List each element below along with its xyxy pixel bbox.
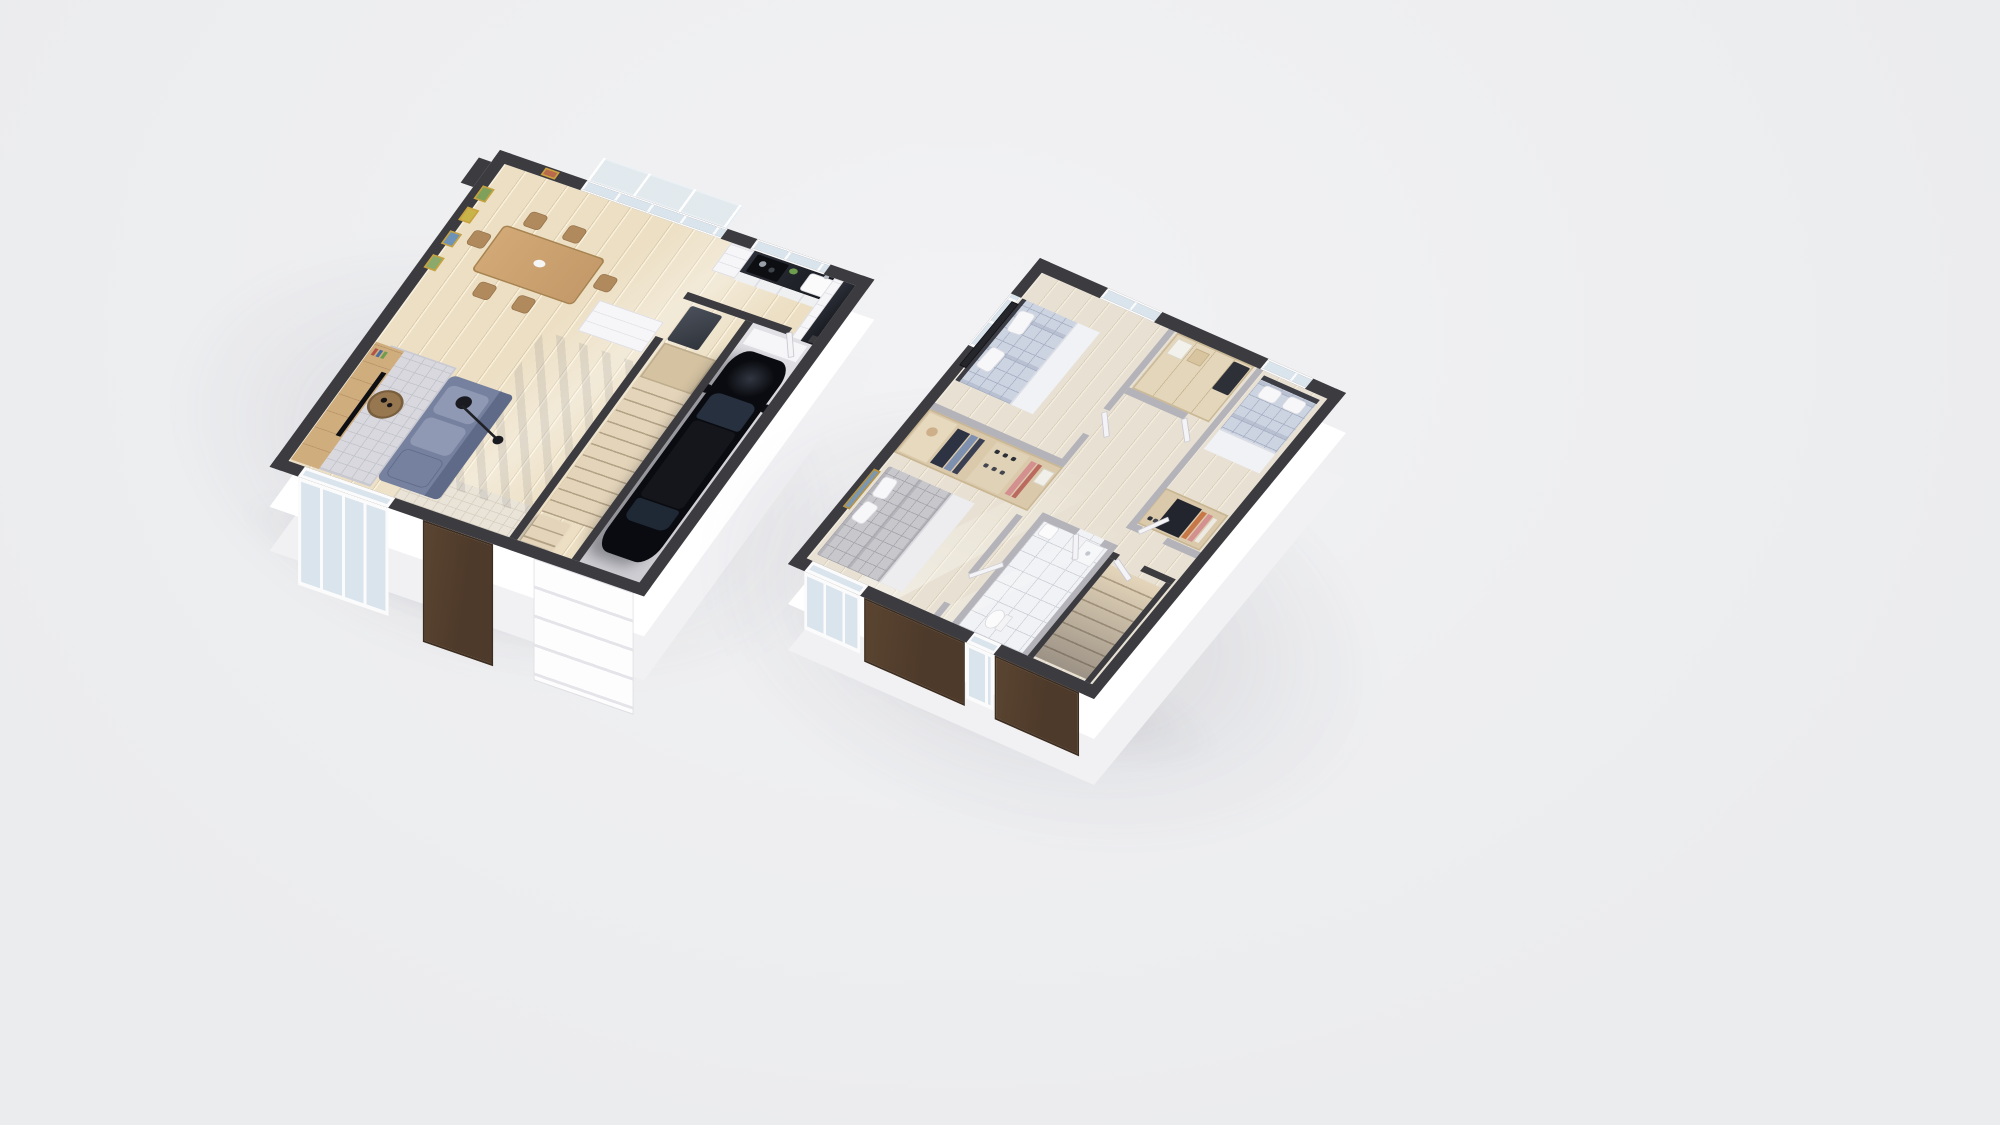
front-door [423,520,493,666]
open-door [1072,533,1079,560]
floor-plan-canvas[interactable] [0,0,2000,1125]
window-glass [969,648,991,706]
storage-box [1186,348,1210,366]
